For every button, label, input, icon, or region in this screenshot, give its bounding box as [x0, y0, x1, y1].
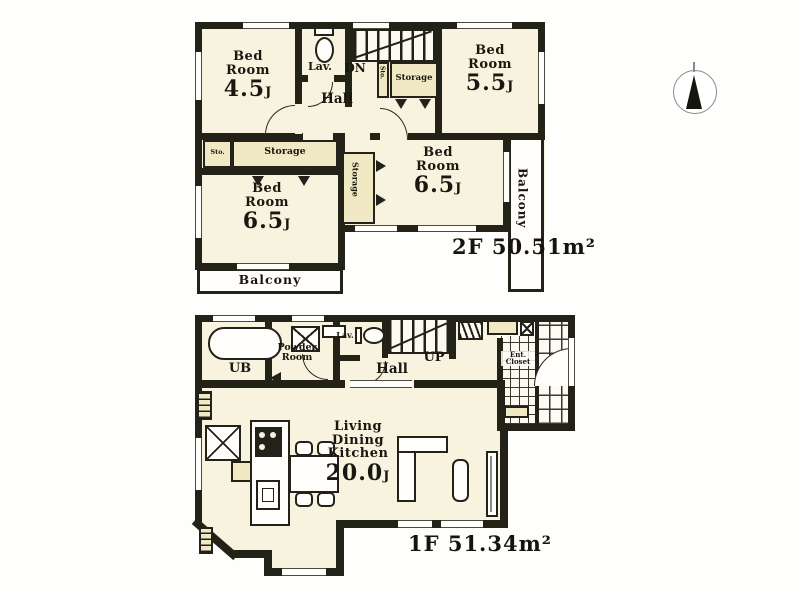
niche-bottom [199, 527, 213, 554]
window-mark [418, 225, 476, 232]
room-name: Room [468, 58, 512, 72]
entrance-closet-label: Ent. Closet [501, 351, 535, 366]
window-mark [243, 22, 289, 29]
dining-chair [295, 441, 313, 456]
closet-small-label: Sto. [203, 149, 232, 156]
bedroom-ne-label: Bed Room 5.5J [451, 44, 529, 95]
room-name: Kitchen [328, 447, 389, 461]
window-mark [457, 22, 512, 29]
folding-door-mark [419, 99, 431, 109]
door-opening [303, 133, 333, 140]
floor1-floor-prot [264, 528, 344, 570]
balcony-south-label: Balcony [197, 273, 343, 286]
storage-mid-label: Storage [351, 162, 359, 197]
storage-left-label: Storage [232, 147, 338, 157]
window-mark [398, 520, 432, 528]
wall [414, 380, 505, 388]
balcony-east-label: Balcony [516, 168, 529, 228]
room-size: 6.5J [414, 173, 462, 197]
entrance-line2: Closet [501, 358, 535, 365]
dining-chair [295, 492, 313, 507]
kitchen-sink-basin [262, 488, 274, 502]
kitchen-box [231, 461, 252, 482]
wall [338, 355, 360, 361]
window-mark [213, 315, 255, 322]
tv-board-line [490, 456, 492, 512]
window-mark [195, 438, 202, 490]
room-size: 6.5J [243, 209, 291, 233]
folding-door-mark [376, 194, 386, 206]
storage-top-label: Storage [390, 74, 438, 83]
window-mark [568, 338, 575, 386]
window-mark [353, 22, 389, 29]
door-opening [295, 104, 302, 134]
stove-burner [270, 432, 276, 438]
bedroom-sw-label: Bed Room 6.5J [228, 182, 306, 233]
sliding-door-mark [350, 380, 412, 388]
window-mark [441, 520, 483, 528]
niche-top [197, 391, 212, 420]
stove-burner [259, 444, 265, 450]
stairs-dn-label: DN [342, 62, 368, 75]
window-mark [237, 263, 289, 270]
ldk-label: Living Dining Kitchen 20.0J [318, 420, 398, 485]
shoe-cabinet [487, 320, 518, 335]
room-name: Living [334, 420, 382, 434]
hall-label: Hall [315, 92, 359, 106]
bath-label: UB [218, 362, 262, 376]
window-mark [292, 315, 324, 322]
sofa-back [397, 436, 448, 453]
hall-label: Hall [370, 362, 414, 376]
window-mark [355, 225, 397, 232]
stove [255, 427, 282, 457]
room-name: Room [226, 64, 270, 78]
lavatory-label: Lav. [298, 61, 342, 73]
wall [497, 424, 575, 431]
room-size: 5.5J [466, 71, 514, 95]
entrance-fixture [520, 321, 534, 336]
wall [195, 168, 345, 175]
room-name: Room [245, 196, 289, 210]
stairs-up-label: UP [416, 351, 452, 365]
lavatory-label: Lav. [334, 331, 356, 339]
room-size: 4.5J [224, 77, 272, 101]
toilet-bowl [363, 327, 385, 344]
floor1-area-label: 1F 51.34m² [408, 531, 552, 556]
window-mark [538, 52, 545, 104]
window-mark [282, 568, 326, 576]
entrance-step-box [504, 406, 529, 418]
room-name: Bed [252, 182, 282, 196]
closet-stair-label: Sto. [378, 66, 384, 79]
bedroom-se-label: Bed Room 6.5J [398, 146, 478, 197]
wall [500, 424, 508, 528]
door-opening [308, 75, 334, 82]
compass-stem [693, 62, 695, 72]
room-name: Bed [423, 146, 453, 160]
floor2-area-label: 2F 50.51m² [452, 234, 596, 259]
wall [336, 520, 344, 576]
window-mark [503, 152, 510, 202]
room-name: Bed [475, 44, 505, 58]
toilet-tank [314, 27, 334, 36]
bedroom-nw-label: Bed Room 4.5J [210, 50, 286, 101]
stove-burner [259, 432, 265, 438]
tv-board [486, 451, 498, 517]
folding-door-mark [376, 160, 386, 172]
window-mark [195, 186, 202, 238]
floor-plan-sheet: Balcony Balcony DN Lav. [0, 0, 810, 600]
coffee-table [452, 459, 469, 502]
room-size: 20.0J [326, 461, 391, 485]
north-needle-icon [686, 75, 702, 109]
room-name: Room [416, 160, 460, 174]
folding-door-mark [395, 99, 407, 109]
door-swing-mark [270, 372, 281, 384]
room-name: Bed [233, 50, 263, 64]
refrigerator [205, 425, 241, 461]
toilet-tank [355, 327, 362, 344]
window-mark [195, 52, 202, 100]
room-name: Dining [332, 434, 384, 448]
dining-chair [317, 492, 335, 507]
washing-machine-symbol [458, 321, 483, 340]
